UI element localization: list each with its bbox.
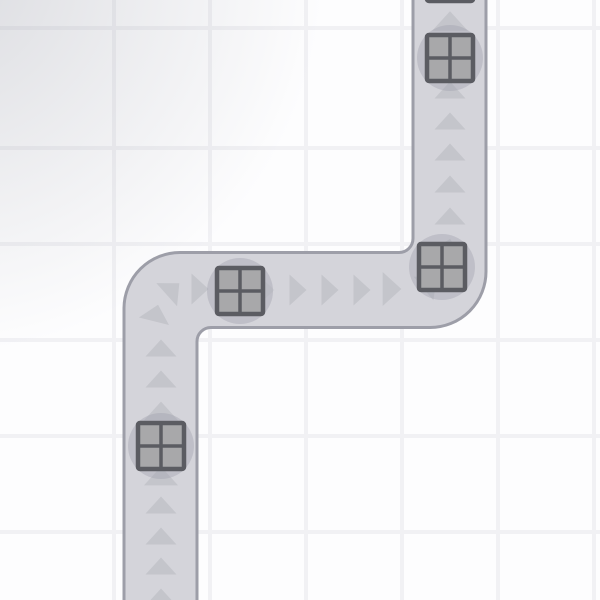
crate[interactable] [128,413,194,479]
crate[interactable] [427,0,473,1]
game-board[interactable] [0,0,600,600]
road-layer [124,0,486,600]
game-scene[interactable] [0,0,600,600]
crate[interactable] [409,234,475,300]
conveyor-road [124,0,486,600]
crate[interactable] [417,25,483,91]
crate[interactable] [207,258,273,324]
